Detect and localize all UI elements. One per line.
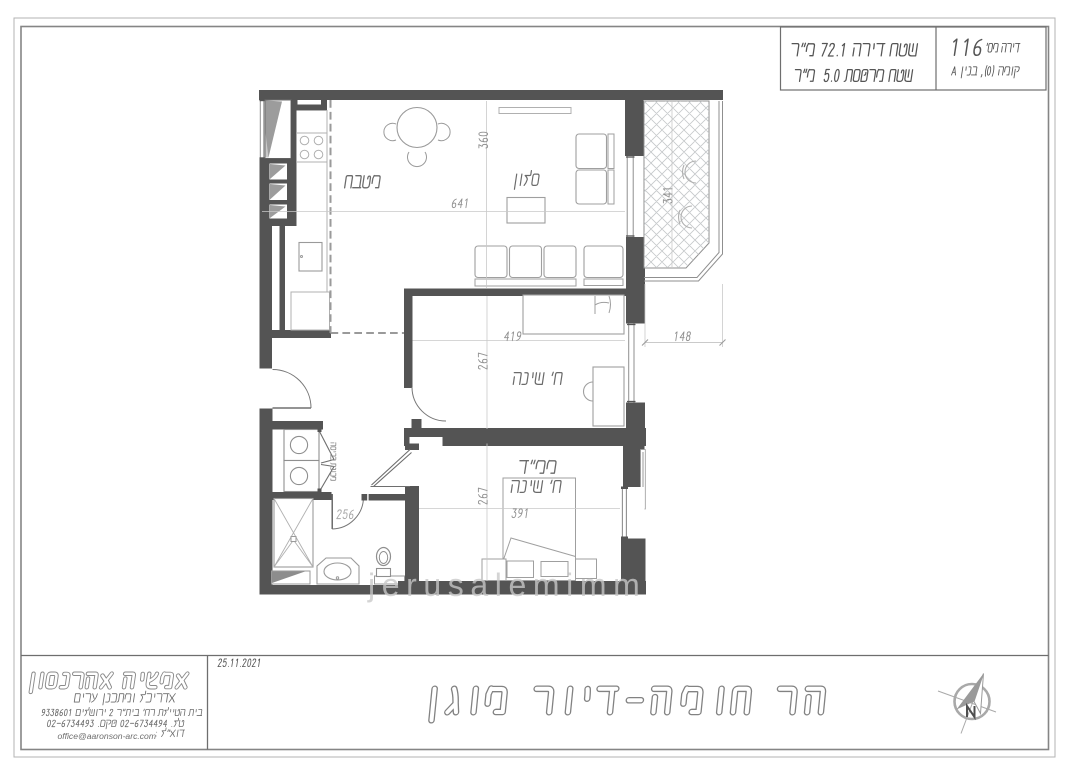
svg-text:jerusalemimm: jerusalemimm [367, 567, 646, 603]
svg-text:office@aaronson-arc.com: office@aaronson-arc.com [57, 731, 156, 741]
